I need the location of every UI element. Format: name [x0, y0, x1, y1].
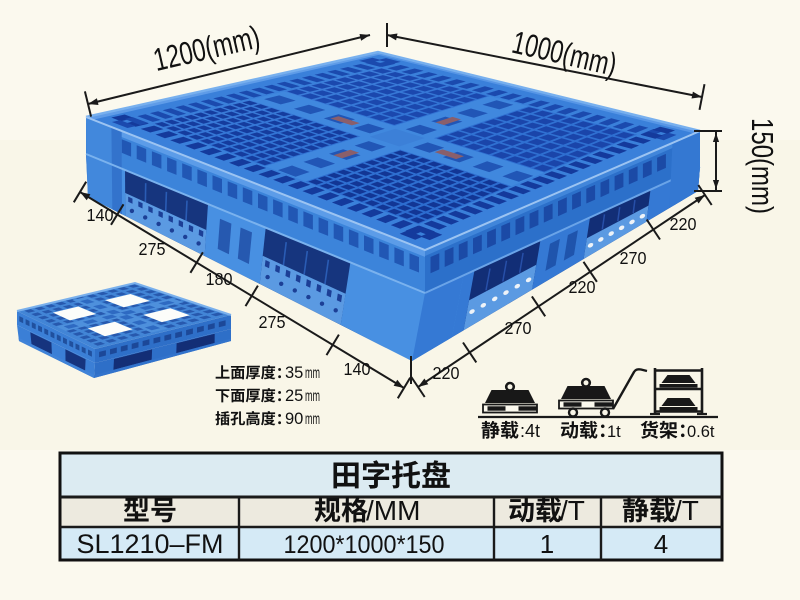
svg-text:275: 275 — [139, 239, 166, 259]
svg-text:140: 140 — [344, 359, 371, 379]
svg-text:/MM: /MM — [366, 495, 420, 526]
svg-text:220: 220 — [433, 363, 460, 383]
svg-text:35: 35 — [285, 364, 303, 382]
svg-text:1t: 1t — [607, 423, 621, 441]
svg-text:270: 270 — [505, 318, 532, 338]
svg-text::4t: :4t — [520, 421, 540, 441]
svg-text:1: 1 — [540, 529, 554, 559]
svg-text:mm: mm — [305, 388, 320, 405]
svg-text:1200*1000*150: 1200*1000*150 — [284, 531, 445, 559]
svg-text:mm: mm — [305, 365, 320, 382]
svg-text:mm: mm — [305, 411, 320, 428]
svg-text:0.6t: 0.6t — [687, 423, 715, 441]
svg-text:/T: /T — [560, 495, 585, 526]
svg-text:25: 25 — [285, 387, 303, 405]
svg-text:90: 90 — [285, 410, 303, 428]
svg-text:150(mm): 150(mm) — [745, 118, 780, 214]
svg-text:/T: /T — [674, 495, 699, 526]
svg-text:4: 4 — [654, 529, 668, 559]
svg-text:275: 275 — [259, 312, 286, 332]
svg-text:220: 220 — [670, 214, 697, 234]
svg-text:270: 270 — [620, 248, 647, 268]
svg-text:220: 220 — [569, 277, 596, 297]
svg-text:140: 140 — [87, 205, 114, 225]
svg-text:SL1210–FM: SL1210–FM — [76, 529, 223, 559]
svg-text:180: 180 — [206, 269, 233, 289]
